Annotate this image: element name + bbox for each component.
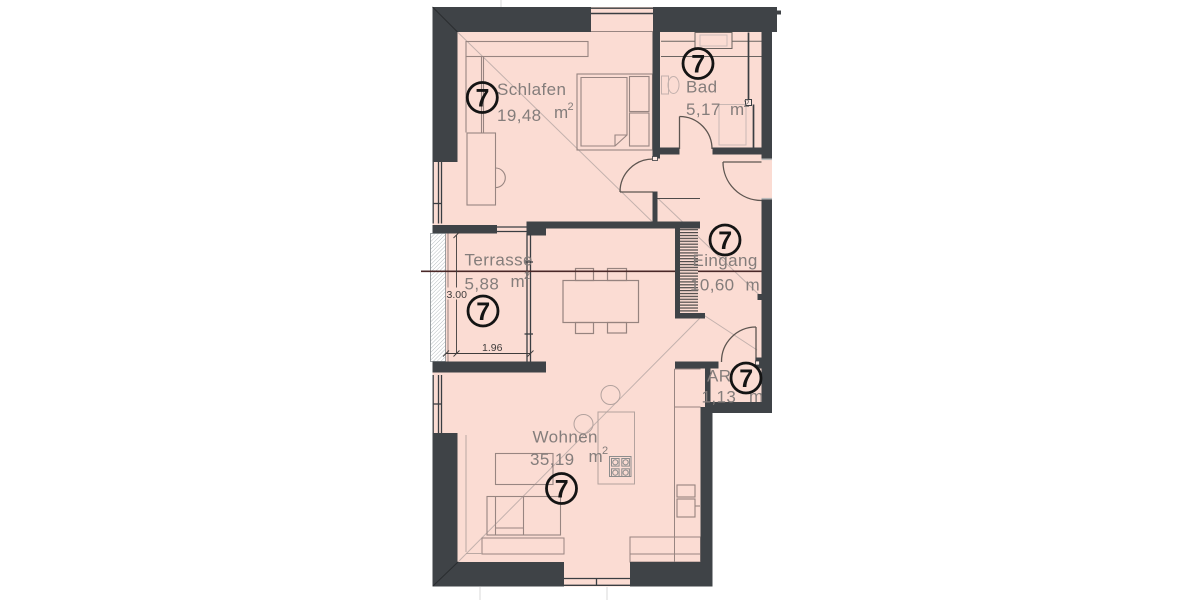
svg-text:5,17: 5,17	[686, 100, 721, 119]
svg-text:2: 2	[744, 98, 750, 110]
svg-text:19,48: 19,48	[497, 106, 542, 125]
svg-text:10,60: 10,60	[690, 276, 735, 295]
svg-text:2: 2	[602, 445, 608, 457]
svg-text:5,88: 5,88	[465, 275, 500, 294]
svg-text:Schlafen: Schlafen	[497, 80, 566, 99]
svg-text:Bad: Bad	[686, 78, 717, 97]
svg-text:AR: AR	[707, 367, 731, 386]
svg-text:7: 7	[739, 365, 753, 393]
svg-text:m: m	[730, 100, 745, 119]
svg-text:1,13: 1,13	[702, 388, 737, 407]
svg-text:7: 7	[476, 298, 490, 326]
svg-text:7: 7	[718, 227, 732, 255]
svg-text:Wohnen: Wohnen	[533, 428, 598, 447]
svg-text:Terrasse: Terrasse	[465, 251, 533, 270]
svg-text:m: m	[589, 447, 604, 466]
svg-text:m: m	[511, 272, 526, 291]
svg-text:2: 2	[524, 270, 530, 282]
svg-text:2: 2	[568, 101, 574, 113]
svg-text:1.96: 1.96	[482, 342, 503, 354]
svg-text:m: m	[554, 103, 569, 122]
svg-text:7: 7	[476, 85, 490, 113]
svg-text:7: 7	[555, 476, 569, 504]
svg-text:7: 7	[691, 51, 705, 79]
svg-text:35,19: 35,19	[530, 450, 575, 469]
svg-text:m: m	[746, 276, 761, 295]
